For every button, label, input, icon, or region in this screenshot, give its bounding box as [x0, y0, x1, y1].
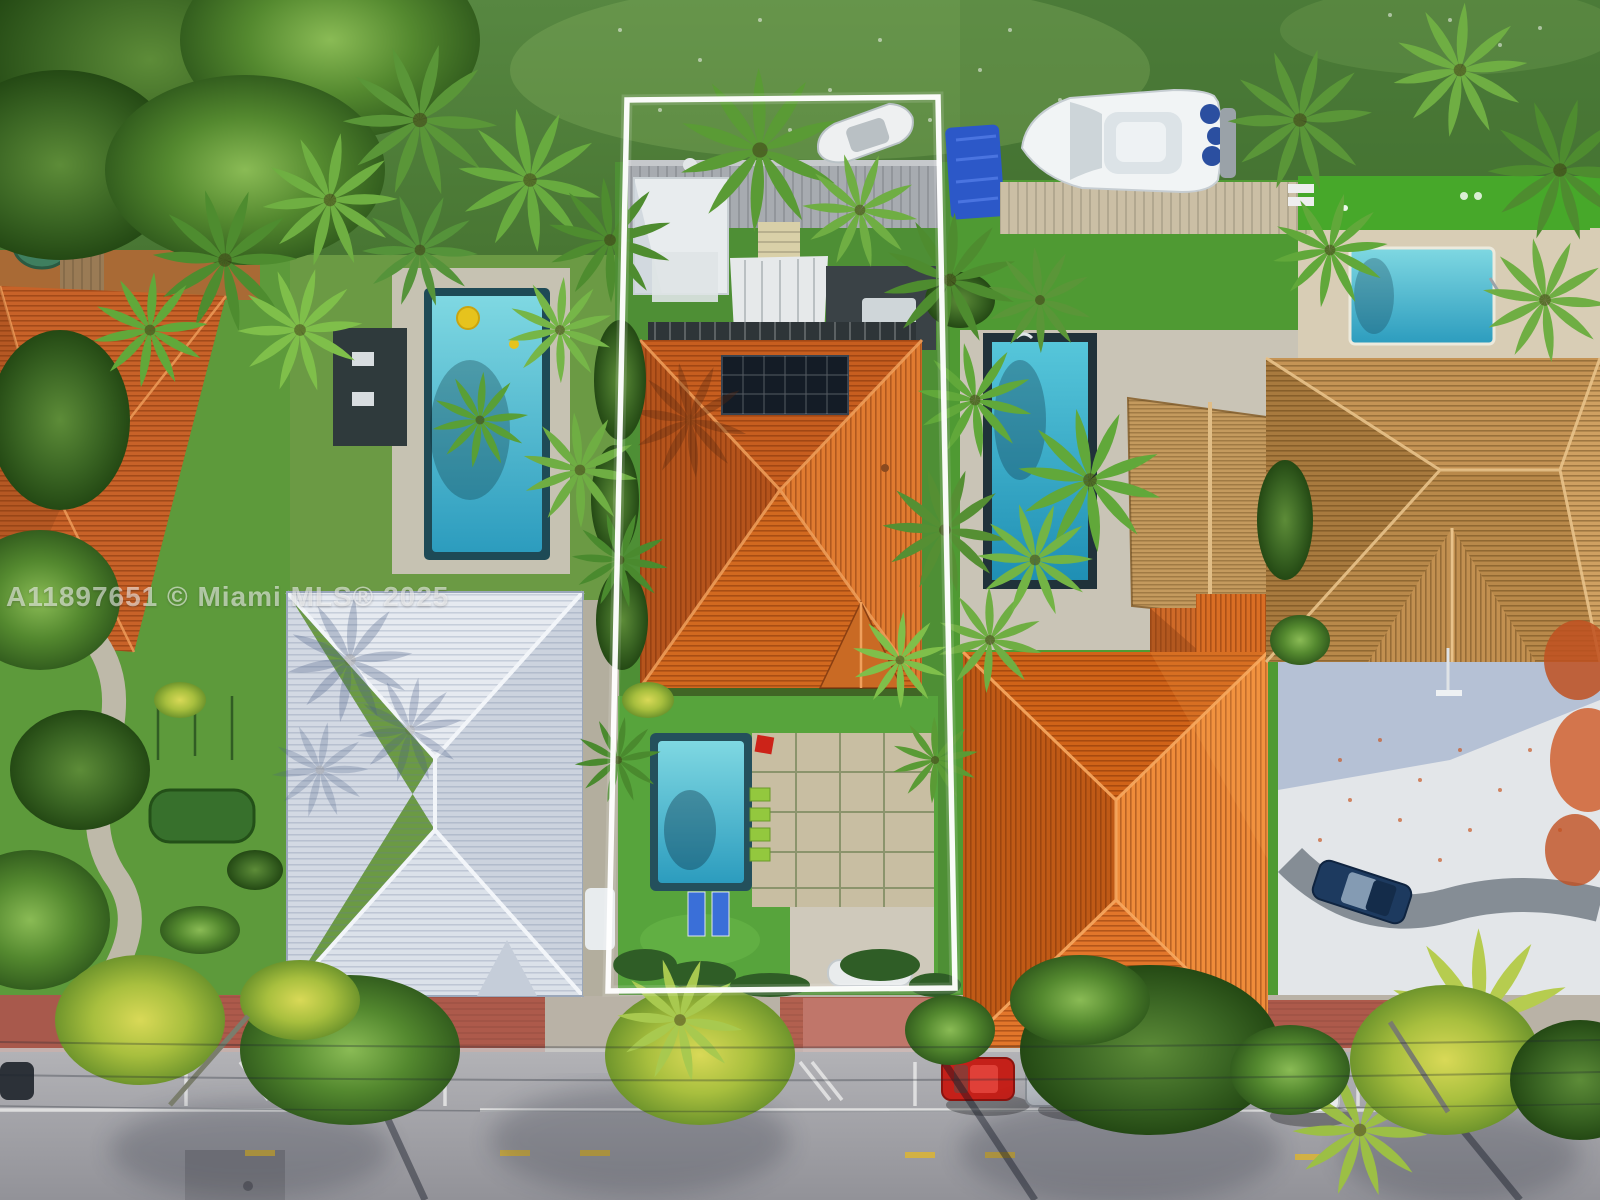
aerial-scene [0, 0, 1600, 1200]
brown-tile-roof [1266, 358, 1600, 662]
far-right-pool [1350, 248, 1500, 344]
trampoline [150, 790, 254, 842]
yacht [1022, 90, 1236, 192]
aerial-photo: A11897651 © Miami MLS® 2025 [0, 0, 1600, 1200]
subject-house-roof [616, 340, 922, 696]
pergola [333, 328, 407, 446]
duck-float [457, 307, 479, 329]
red-chair [755, 735, 775, 755]
subject-backyard [618, 696, 938, 988]
gray-roof-house [254, 592, 583, 996]
red-bougainvillea [1544, 620, 1600, 886]
swimming-pool [650, 733, 752, 891]
paver-patio [752, 733, 934, 907]
